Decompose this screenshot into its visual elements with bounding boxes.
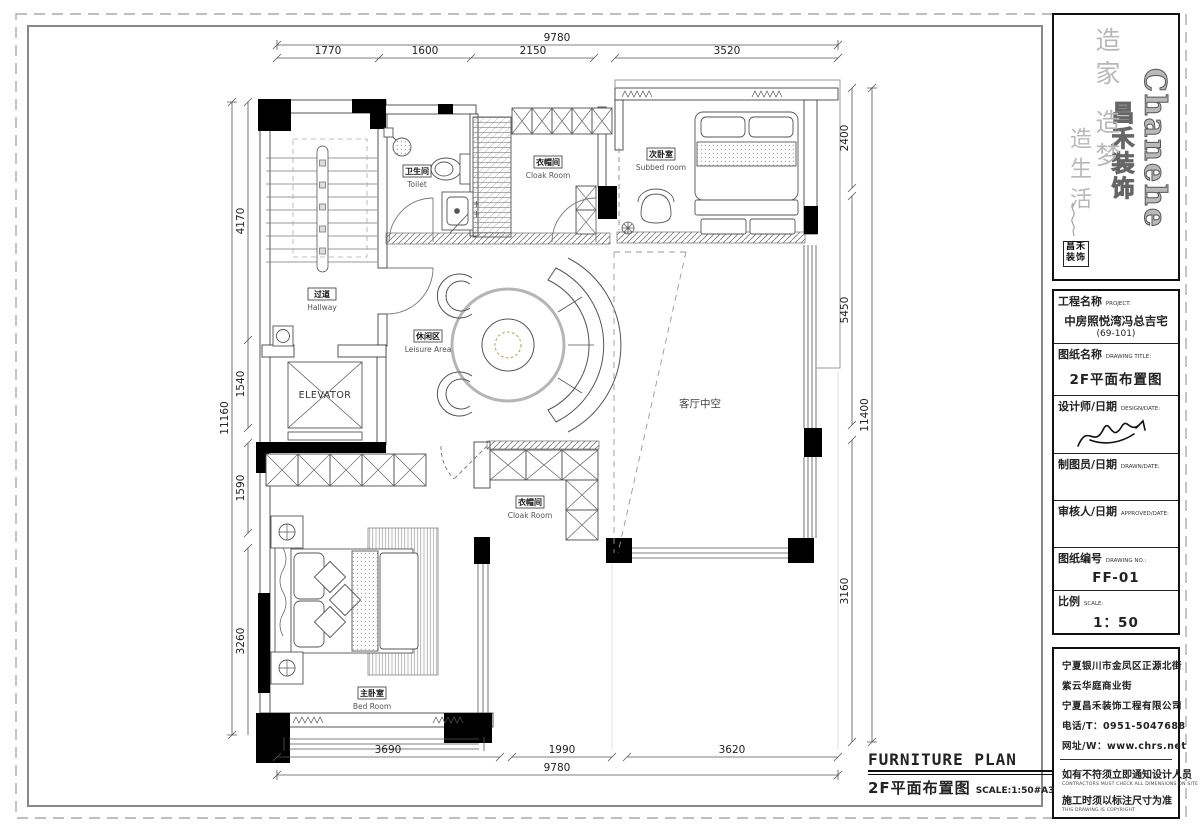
svg-text:过道: 过道: [314, 289, 330, 299]
calligraphy-mark: [1067, 201, 1079, 237]
field-approver: 审核人/日期 APPROVED/DATE:: [1054, 500, 1178, 547]
drawing-title-label-en: DRAWING TITLE:: [1106, 354, 1151, 360]
drawing-title-label: 图纸名称: [1058, 348, 1102, 361]
field-project: 工程名称 PROJECT: 中房照悦湾冯总吉宅 (69-101): [1054, 291, 1178, 343]
room-label-subbed: 次卧室 Subbed room: [636, 148, 686, 172]
floor-plan-canvas: ELEVATOR: [0, 0, 1200, 833]
dim-top-overall: 9780: [544, 32, 571, 44]
windows: [284, 245, 816, 751]
drawing-sheet: ELEVATOR: [0, 0, 1200, 833]
dim-bottom-2: 1990: [549, 744, 576, 756]
designer-label-en: DESIGN/DATE:: [1121, 406, 1160, 412]
drawing-no: FF-01: [1092, 570, 1139, 586]
drafter-label-en: DRAWN/DATE:: [1121, 464, 1160, 470]
wc-tank: [460, 154, 470, 184]
dim-bottom-3: 3620: [719, 744, 746, 756]
project-label: 工程名称: [1058, 295, 1102, 308]
scale-value: 1：50: [1093, 611, 1139, 631]
dim-right-overall: 11400: [859, 398, 871, 431]
svg-text:主卧室: 主卧室: [360, 688, 384, 698]
elevator: [288, 362, 362, 440]
project-unit: (69-101): [1097, 329, 1136, 339]
plan-title-scale: SCALE:1:50#A3: [976, 786, 1055, 796]
field-designer: 设计师/日期 DESIGN/DATE:: [1054, 395, 1178, 453]
svg-text:Cloak Room: Cloak Room: [526, 171, 571, 180]
svg-text:Bed Room: Bed Room: [353, 702, 391, 711]
company-address-1: 宁夏银川市金凤区正源北街: [1062, 658, 1170, 672]
dim-top-1: 1770: [315, 45, 342, 57]
plan-title-cn: 2F平面布置图: [868, 777, 971, 798]
dim-bottom-1: 3690: [375, 744, 402, 756]
project-label-en: PROJECT:: [1106, 301, 1131, 307]
svg-text:衣帽间: 衣帽间: [536, 157, 560, 167]
dim-left-4: 3260: [235, 628, 247, 655]
logo-panel: Chanehe 昌禾装饰 造家 造梦 造生活 昌禾装饰: [1052, 13, 1180, 281]
dim-right-3: 3160: [839, 578, 851, 605]
designer-signature: [1070, 416, 1162, 452]
ceiling-fan-icon: [622, 222, 634, 234]
note-1-cn: 如有不符须立即通知设计人员: [1062, 766, 1170, 781]
company-name: 宁夏昌禾装饰工程有限公司: [1062, 698, 1170, 712]
dim-left-2: 1540: [235, 371, 247, 398]
dim-right-1: 2400: [839, 125, 851, 152]
svg-text:Leisure Area: Leisure Area: [405, 345, 452, 354]
slatted-closet: [473, 117, 511, 237]
field-drafter: 制图员/日期 DRAWN/DATE:: [1054, 453, 1178, 500]
svg-text:Subbed room: Subbed room: [636, 163, 686, 172]
scale-label-en: SCALE:: [1084, 601, 1104, 607]
toilet-fixtures: [384, 128, 479, 233]
svg-text:衣帽间: 衣帽间: [518, 497, 542, 507]
company-address-2: 紫云华庭商业街: [1062, 678, 1170, 692]
company-panel: 宁夏银川市金凤区正源北街 紫云华庭商业街 宁夏昌禾装饰工程有限公司 电话/T：0…: [1052, 647, 1180, 819]
approver-label: 审核人/日期: [1058, 505, 1117, 518]
field-drawing-title: 图纸名称 DRAWING TITLE: 2F平面布置图: [1054, 343, 1178, 396]
svg-text:次卧室: 次卧室: [649, 149, 673, 159]
room-label-hallway: 过道 Hallway: [307, 288, 337, 312]
plan-title-en: FURNITURE PLAN: [868, 750, 1054, 772]
note-2-cn: 施工时须以标注尺寸为准: [1062, 792, 1170, 807]
svg-text:Toilet: Toilet: [406, 180, 427, 189]
dim-top-3: 2150: [520, 45, 547, 57]
svg-text:Hallway: Hallway: [307, 303, 337, 312]
dim-left-3: 1590: [235, 475, 247, 502]
title-block: Chanehe 昌禾装饰 造家 造梦 造生活 昌禾装饰 工程名称 PROJECT…: [1052, 13, 1180, 819]
company-phone: 电话/T：0951-5047688: [1062, 718, 1170, 732]
scale-label: 比例: [1058, 595, 1080, 608]
divider: [1060, 759, 1172, 760]
svg-text:休闲区: 休闲区: [415, 331, 440, 341]
plan-title: FURNITURE PLAN 2F平面布置图 SCALE:1:50#A3: [868, 750, 1054, 798]
room-label-void: 客厅中空: [679, 397, 721, 410]
field-drawing-no: 图纸编号 DRAWING NO.: FF-01: [1054, 547, 1178, 590]
field-scale: 比例 SCALE: 1：50: [1054, 590, 1178, 633]
stairs: [266, 139, 377, 272]
drawing-title: 2F平面布置图: [1069, 368, 1162, 388]
svg-text:Cloak Room: Cloak Room: [508, 511, 553, 520]
dim-left-overall: 11160: [219, 401, 231, 434]
dim-bottom-overall: 9780: [544, 762, 571, 774]
void-boundary: [614, 252, 686, 553]
company-seal: 昌禾装饰: [1063, 241, 1089, 267]
floor-drain: [273, 326, 293, 346]
room-label-cloak-top: 衣帽间 Cloak Room: [526, 156, 571, 180]
room-label-bedroom: 主卧室 Bed Room: [353, 687, 391, 711]
info-panel: 工程名称 PROJECT: 中房照悦湾冯总吉宅 (69-101) 图纸名称 DR…: [1052, 289, 1180, 635]
shower-head: [393, 138, 411, 156]
subbed-chair: [638, 189, 674, 223]
leisure-table: [452, 289, 564, 401]
designer-label: 设计师/日期: [1058, 400, 1117, 413]
svg-text:卫生间: 卫生间: [405, 166, 429, 176]
master-bed: [275, 545, 418, 655]
dim-left-1: 4170: [235, 208, 247, 235]
approver-label-en: APPROVED/DATE:: [1121, 511, 1169, 517]
drawing-no-label-en: DRAWING NO.:: [1106, 558, 1146, 564]
project-name: 中房照悦湾冯总吉宅: [1064, 313, 1168, 329]
dim-right-2: 5450: [839, 297, 851, 324]
drawing-no-label: 图纸编号: [1058, 552, 1102, 565]
subbed-bed: [695, 112, 798, 234]
elevator-label: ELEVATOR: [299, 390, 352, 401]
room-label-toilet: 卫生间 Toilet: [403, 165, 431, 189]
brand-logo-en: Chanehe: [1137, 68, 1172, 229]
note-1-en: CONTRACTORS MUST CHECK ALL DIMENSIONS ON…: [1062, 782, 1170, 787]
company-website: 网址/W：www.chrs.net: [1062, 738, 1170, 752]
room-label-leisure: 休闲区 Leisure Area: [405, 330, 452, 354]
dim-top-2: 1600: [412, 45, 439, 57]
room-label-cloak-bottom: 衣帽间 Cloak Room: [508, 496, 553, 520]
drafter-label: 制图员/日期: [1058, 458, 1117, 471]
note-2-en: THIS DRAWING IS COPYRIGHT: [1062, 808, 1170, 813]
leisure-sofa: [548, 258, 621, 432]
dim-top-4: 3520: [714, 45, 741, 57]
